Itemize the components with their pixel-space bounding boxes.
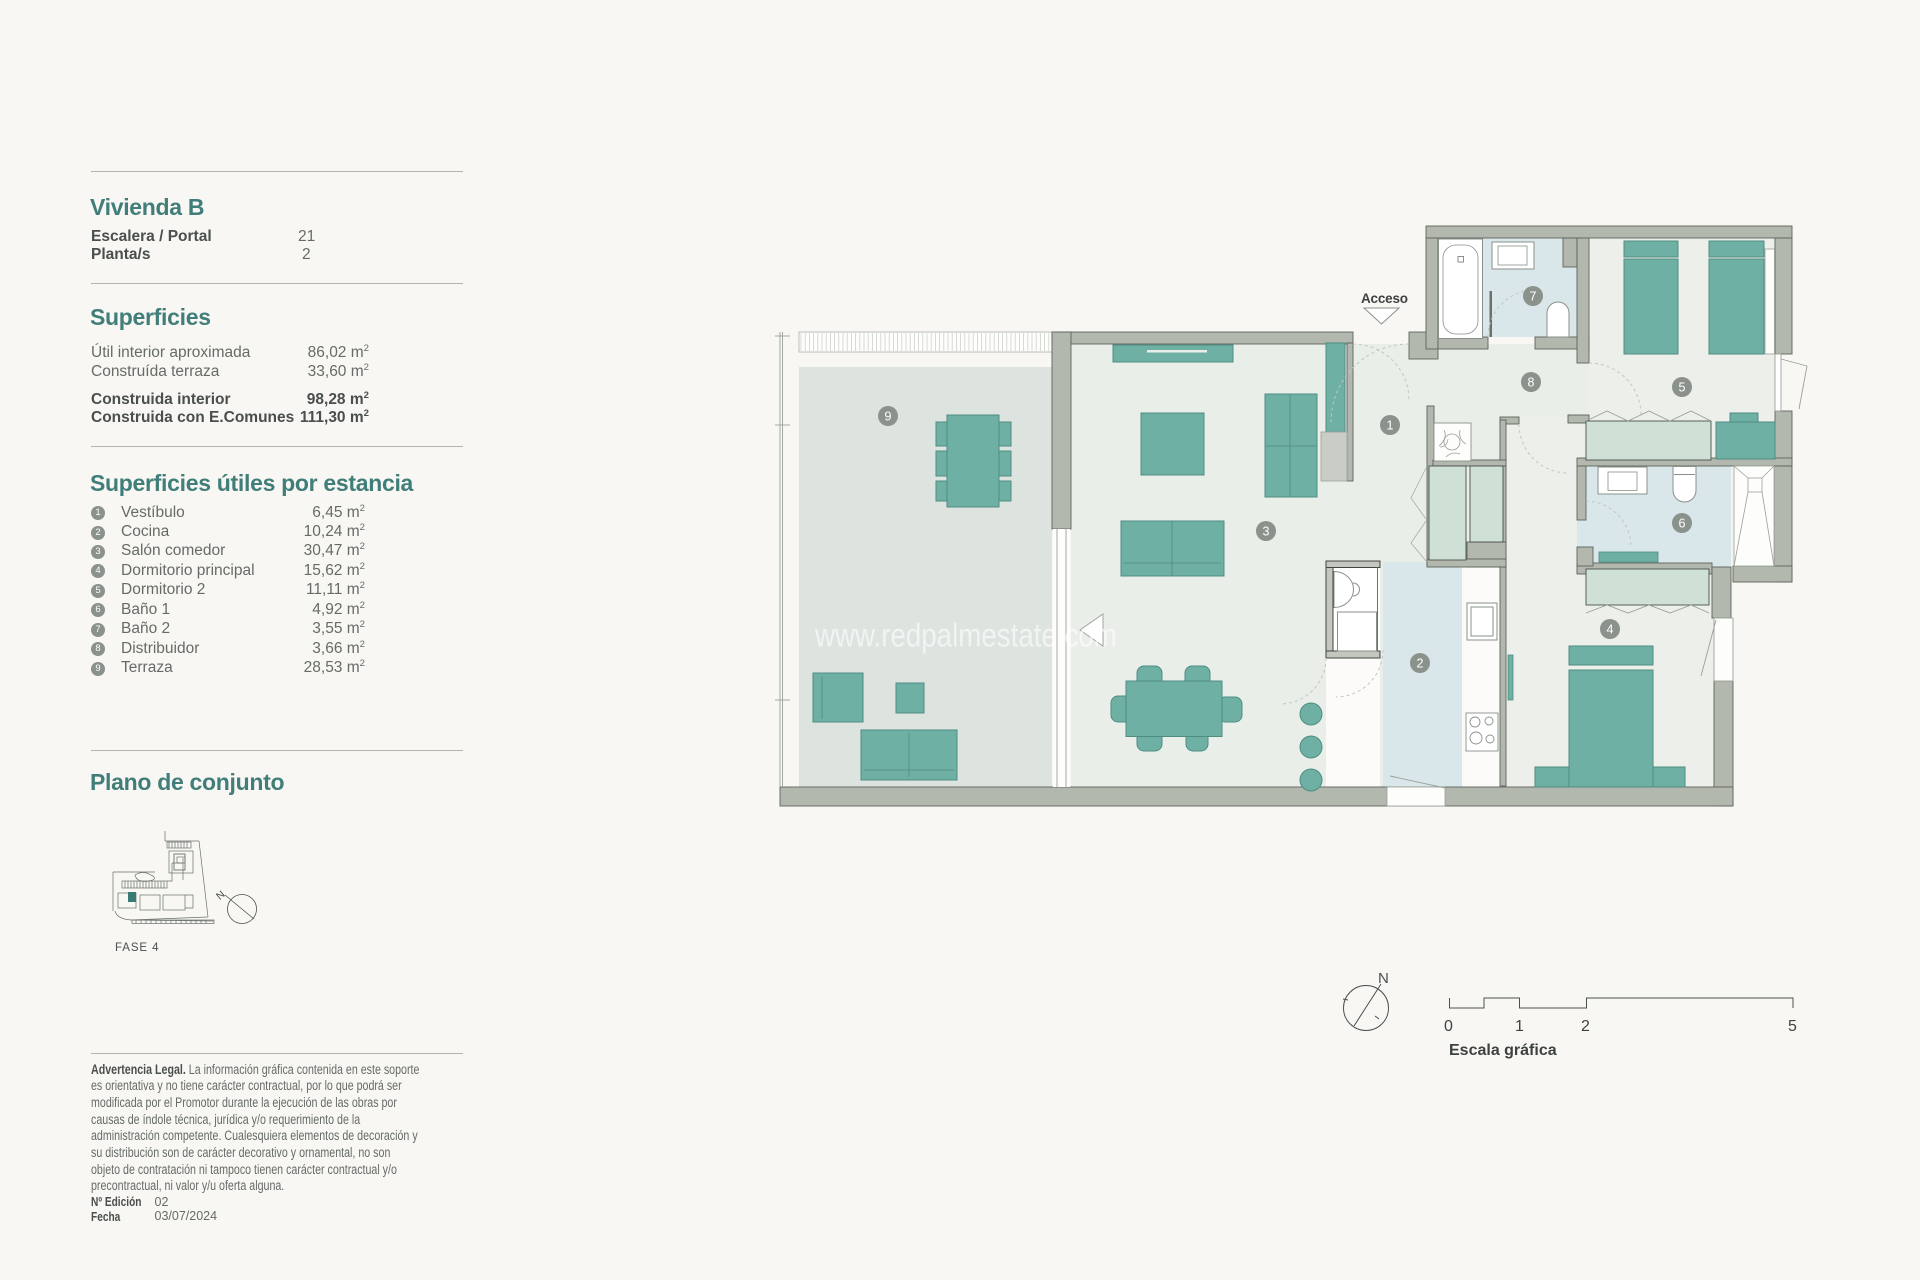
svg-text:2: 2 bbox=[1581, 1018, 1590, 1035]
svg-text:9: 9 bbox=[885, 410, 892, 424]
svg-text:1: 1 bbox=[1387, 419, 1394, 433]
svg-text:N: N bbox=[1378, 970, 1389, 987]
svg-text:2: 2 bbox=[1417, 657, 1424, 671]
svg-text:5: 5 bbox=[1679, 381, 1686, 395]
svg-text:4: 4 bbox=[1607, 623, 1614, 637]
svg-text:Escala gráfica: Escala gráfica bbox=[1449, 1042, 1557, 1059]
svg-text:3: 3 bbox=[1263, 525, 1270, 539]
svg-text:1: 1 bbox=[1515, 1018, 1524, 1035]
svg-text:www.redpalmestate.com: www.redpalmestate.com bbox=[814, 617, 1117, 654]
svg-text:N: N bbox=[214, 889, 228, 903]
svg-text:8: 8 bbox=[1528, 376, 1535, 390]
svg-text:5: 5 bbox=[1788, 1018, 1797, 1035]
svg-text:Acceso: Acceso bbox=[1361, 291, 1408, 306]
svg-text:6: 6 bbox=[1679, 517, 1686, 531]
svg-text:7: 7 bbox=[1530, 290, 1537, 304]
svg-text:0: 0 bbox=[1444, 1018, 1453, 1035]
